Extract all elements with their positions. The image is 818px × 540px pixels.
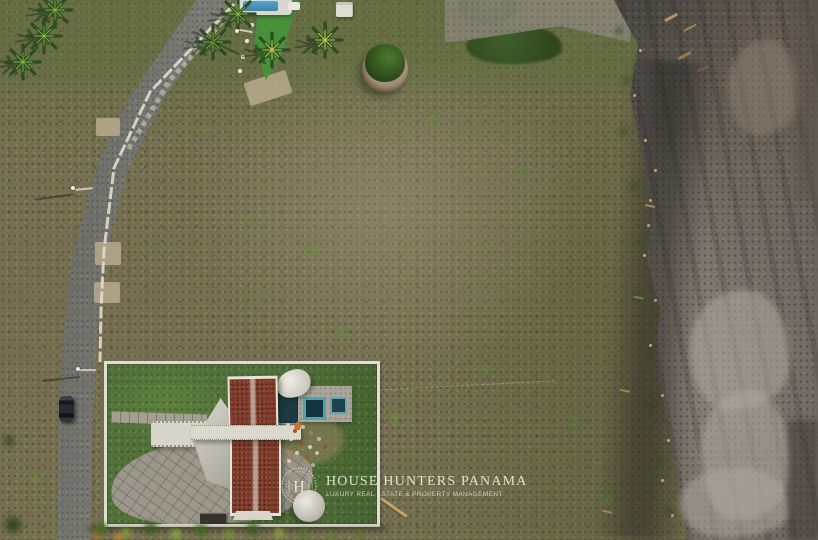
palm-tree [250,28,294,72]
casita-blue-window [303,397,326,420]
tideline-dark-band [795,0,818,200]
utility-hut [336,2,353,17]
palm-tree [1,40,45,84]
construction-debris [282,420,284,422]
logo-tagline: LUXURY REAL ESTATE & PROPERTY MANAGEMENT [326,491,528,498]
street-lamp-arm [80,369,96,371]
casita-small-window [330,397,347,414]
main-roof-lower [230,433,281,516]
street-lamp [71,186,75,190]
street-lamp [76,367,80,371]
roof-gable-end [233,511,273,520]
planter-bush [365,44,405,82]
tideline-dark-band [788,420,818,540]
garden-shed [200,513,226,527]
logo-monogram: H [280,466,318,506]
street-lamp [235,29,239,33]
aerial-photo-scene: H HOUSE HUNTERS PANAMA LUXURY REAL ESTAT… [0,0,818,540]
roof-walkway-band [191,425,301,440]
watermark-logo: H HOUSE HUNTERS PANAMA LUXURY REAL ESTAT… [280,466,528,506]
wall-shadow [88,527,388,531]
logo-text-block: HOUSE HUNTERS PANAMA LUXURY REAL ESTATE … [326,474,528,498]
perimeter-foliage [0,0,2,2]
logo-title: HOUSE HUNTERS PANAMA [326,474,528,489]
light-sand-patch [728,40,800,135]
monogram-letter: H [293,479,305,496]
palm-tree [303,18,347,62]
parked-car [59,396,74,422]
light-sand-patch [680,468,790,538]
poolside-structure [288,2,300,10]
